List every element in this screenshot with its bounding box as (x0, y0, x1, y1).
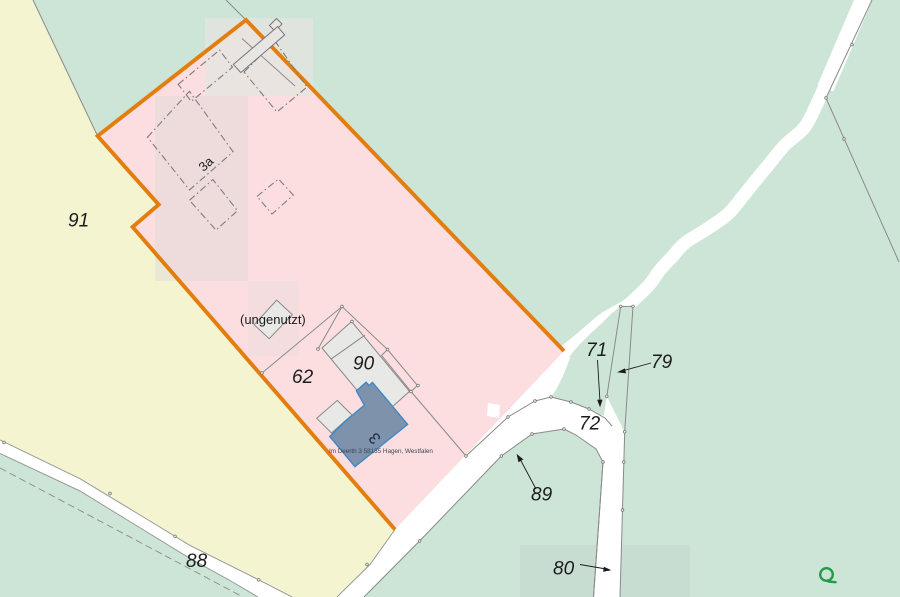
svg-text:90: 90 (353, 354, 375, 375)
svg-text:91: 91 (68, 211, 89, 232)
svg-text:(ungenutzt): (ungenutzt) (240, 312, 306, 327)
svg-text:80: 80 (553, 559, 575, 580)
svg-text:79: 79 (651, 352, 673, 373)
svg-text:71: 71 (586, 340, 607, 361)
svg-text:89: 89 (531, 485, 553, 506)
svg-text:Im Deerth 3 58135 Hagen, Westf: Im Deerth 3 58135 Hagen, Westfalen (329, 448, 433, 455)
svg-text:88: 88 (186, 551, 208, 572)
svg-text:72: 72 (579, 414, 601, 435)
svg-text:62: 62 (292, 367, 314, 388)
